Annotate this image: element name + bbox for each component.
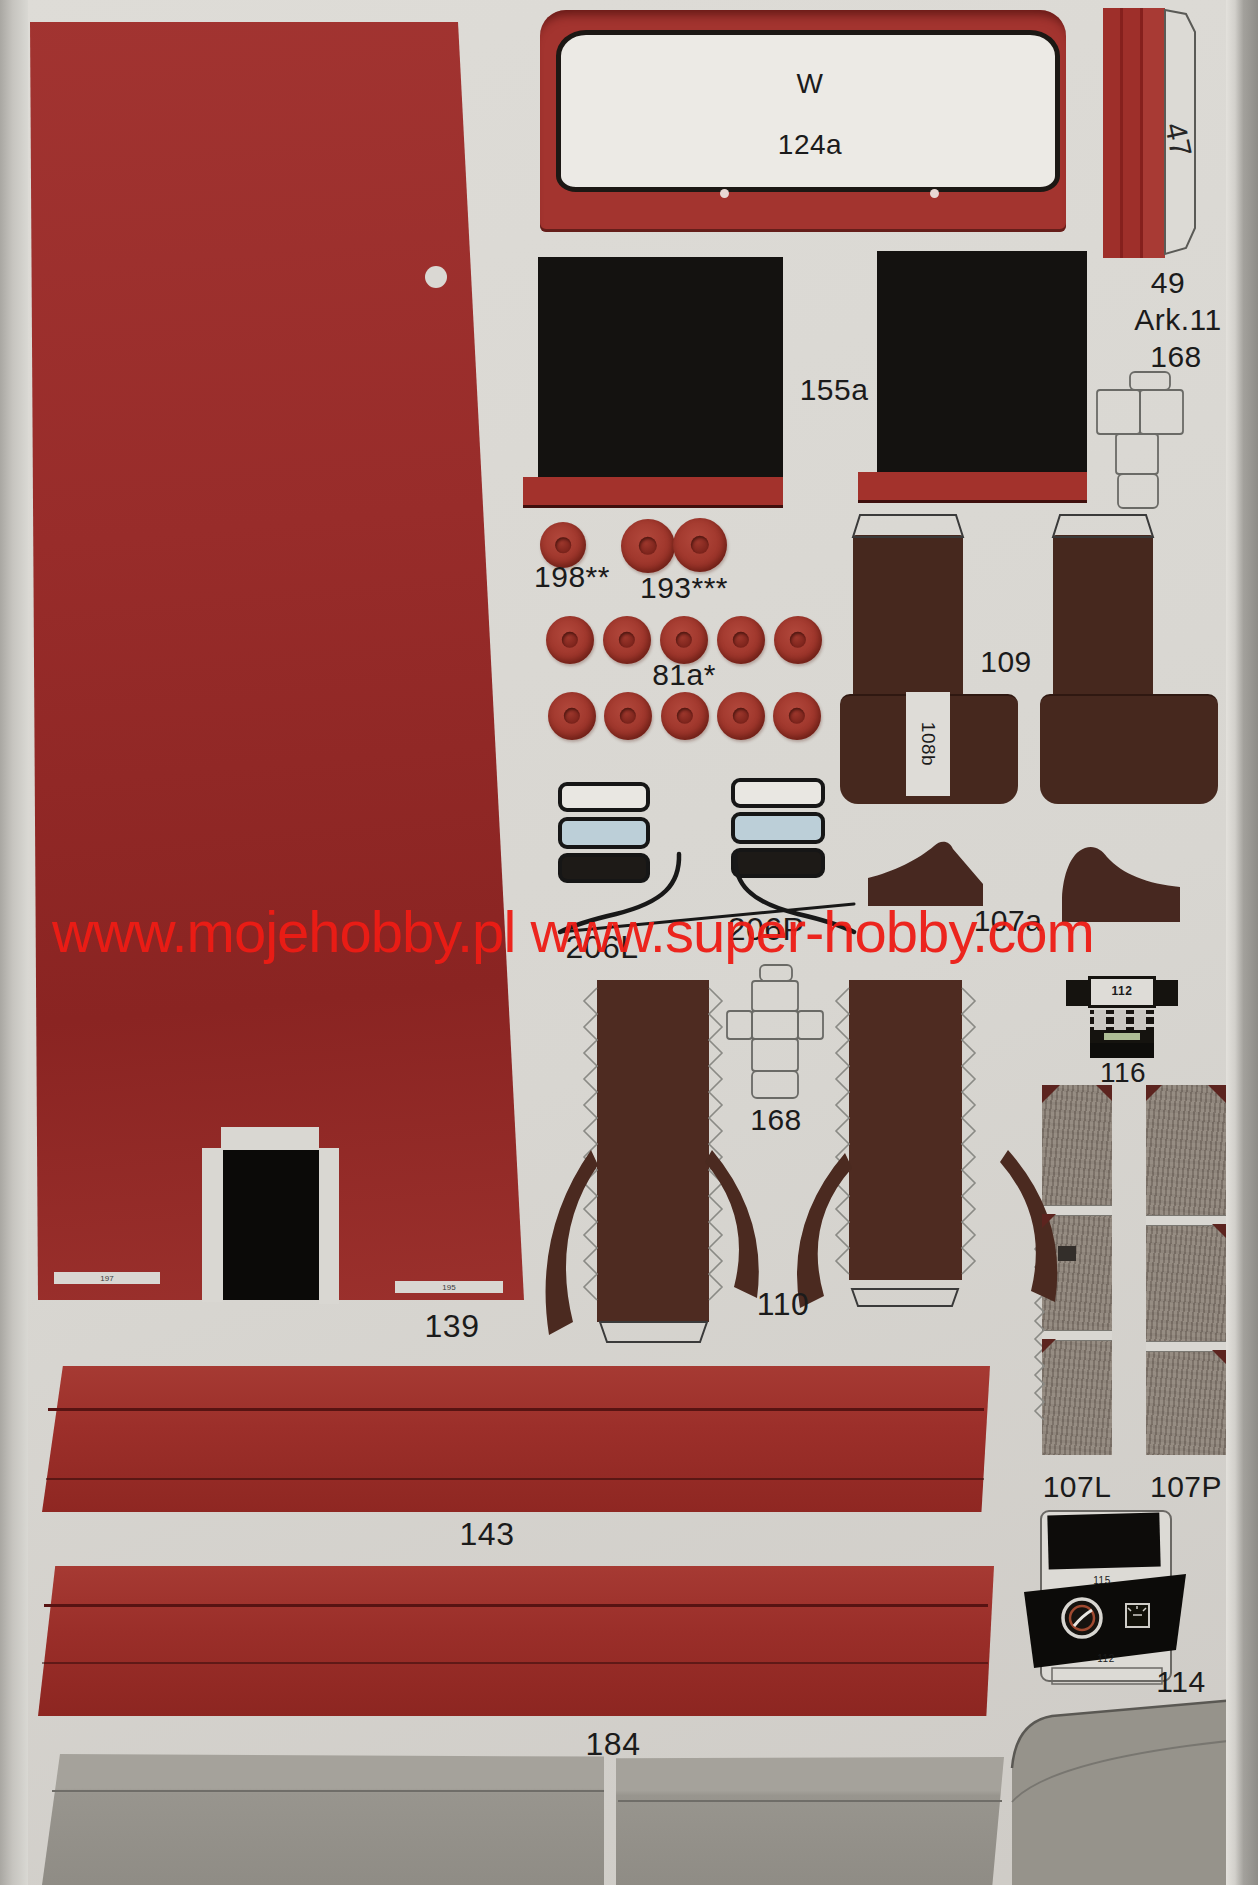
wheel-arch-107a-left: [868, 842, 983, 906]
mat-155a-right-redstrip: [858, 472, 1087, 503]
plank-107L: [1042, 1085, 1112, 1455]
tarp-143-seam: [48, 1408, 984, 1411]
part-81a-label: 81a*: [652, 658, 716, 692]
dash-top-black: [1047, 1513, 1160, 1570]
rivet-dot-left: [720, 189, 729, 198]
disc-81a-r1c1: [546, 616, 594, 664]
glass-206L-white: [558, 782, 650, 812]
disc-81a-r2c2: [604, 692, 652, 740]
part-108b-label: 108b: [917, 722, 939, 766]
marker-strip-right-label: 195: [442, 1283, 455, 1292]
plank-107P: [1146, 1085, 1226, 1455]
part-114-label: 114: [1156, 1665, 1205, 1699]
marker-strip-left-label: 197: [100, 1274, 113, 1283]
seat-right-base: [1040, 694, 1218, 804]
glass-206P-white: [731, 778, 825, 808]
side-strip-47-label: 47: [1158, 120, 1198, 161]
tarp-184-seam: [44, 1604, 988, 1607]
rivet-dot-right: [930, 189, 939, 198]
cab-side-panel-139: [0, 0, 560, 1320]
tarp-143-seam2: [46, 1478, 984, 1480]
plank-107P-joint1: [1146, 1215, 1226, 1226]
part-116-label: 116: [1100, 1057, 1146, 1089]
engine-column-left: [597, 980, 709, 1322]
sheet-name: Ark.11: [1134, 303, 1221, 337]
part-143-label: 143: [460, 1516, 515, 1553]
radio-tab-left: [1066, 980, 1088, 1006]
glass-206L-blue: [558, 817, 650, 849]
tarp-184-seam2: [42, 1662, 988, 1664]
grey-strip-left-line: [52, 1790, 604, 1792]
radio-display: [1104, 1033, 1140, 1040]
radio-face-label: 112: [1112, 984, 1133, 998]
part-110-label: 110: [757, 1286, 810, 1323]
part-107P-label: 107P: [1150, 1470, 1222, 1504]
glass-206P-blue: [731, 812, 825, 844]
door-frame-right: [319, 1148, 339, 1304]
grey-strip-right: [616, 1757, 1004, 1885]
part-155a-label: 155a: [800, 373, 869, 407]
part-184-label: 184: [586, 1726, 641, 1763]
grey-strip-right-line: [618, 1800, 1002, 1802]
disc-81a-r2c1: [548, 692, 596, 740]
mat-155a-left: [538, 257, 783, 477]
windshield-number: 124a: [778, 129, 842, 161]
part-139-label: 139: [425, 1308, 480, 1345]
door-opening: [223, 1150, 319, 1300]
dash-112-label: 112: [1097, 1653, 1114, 1664]
seat-left-back: [853, 535, 963, 697]
page-edge-right: [1226, 0, 1258, 1885]
radio-button-grid: [1090, 1010, 1154, 1030]
windshield-glass: [556, 30, 1060, 192]
disc-193-b: [673, 518, 727, 572]
plank-107L-chip: [1058, 1246, 1076, 1261]
part-107L-label: 107L: [1043, 1470, 1112, 1504]
plank-107P-joint2: [1146, 1341, 1226, 1352]
part-193-label: 193***: [640, 571, 728, 605]
glass-206L-black: [558, 853, 650, 883]
seat-right-back: [1053, 535, 1153, 697]
radio-bottom-block: [1090, 1043, 1154, 1058]
mudguard-strip: [1012, 1698, 1258, 1885]
part-168-mid-label: 168: [750, 1103, 802, 1137]
glass-206P-black: [731, 848, 825, 878]
mat-155a-right: [877, 251, 1087, 472]
part-198-label: 198**: [534, 560, 610, 594]
net-168-top-label: 168: [1150, 340, 1202, 374]
disc-81a-r2c3: [661, 692, 709, 740]
disc-81a-r1c5: [774, 616, 822, 664]
disc-81a-r1c3: [660, 616, 708, 664]
panel-hole: [425, 266, 447, 288]
sheet-number: 49: [1151, 266, 1185, 300]
page-edge-left: [0, 0, 28, 1885]
mat-155a-left-redstrip: [523, 477, 783, 508]
paper-model-sheet-scan: 197 195 139 W 124a 47 49 Ark.11 168 155a…: [0, 0, 1258, 1885]
seat-glue-tabs: [853, 515, 1153, 537]
tarp-band-143: [42, 1366, 990, 1512]
plank-107L-joint1: [1042, 1205, 1112, 1216]
watermark-text: www.mojehobby.pl www.super-hobby.com: [52, 898, 1094, 965]
cube-net-168-mid: [727, 965, 823, 1098]
radio-tab-right: [1156, 980, 1178, 1006]
engine-column-right: [849, 980, 962, 1280]
plank-107L-joint2: [1042, 1330, 1112, 1341]
part-109-label: 109: [980, 645, 1032, 679]
door-frame-top: [221, 1127, 319, 1150]
windshield-letter: W: [797, 68, 824, 100]
grey-strip-left: [42, 1754, 604, 1885]
disc-81a-r2c4: [717, 692, 765, 740]
disc-81a-r1c4: [717, 616, 765, 664]
disc-193-a: [621, 519, 675, 573]
tarp-band-184: [38, 1566, 994, 1716]
dash-115-label: 115: [1093, 1575, 1110, 1586]
door-frame-left: [202, 1148, 223, 1302]
disc-81a-r1c2: [603, 616, 651, 664]
side-strip-47: [1103, 8, 1165, 258]
disc-81a-r2c5: [773, 692, 821, 740]
cube-net-168-top: [1097, 372, 1183, 508]
